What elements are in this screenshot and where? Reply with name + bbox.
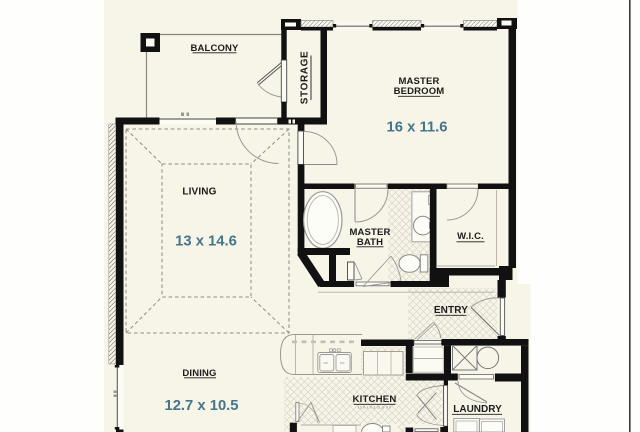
svg-text:BEDROOM: BEDROOM: [394, 86, 445, 97]
svg-text:16 x 11.6: 16 x 11.6: [387, 120, 448, 136]
svg-text:13 x 14.6: 13 x 14.6: [175, 234, 237, 250]
svg-text:W.I.C.: W.I.C.: [457, 231, 484, 242]
svg-text:STORAGE: STORAGE: [300, 51, 311, 104]
svg-text:10.6 x 9.3 CLG 9.0: 10.6 x 9.3 CLG 9.0: [358, 406, 392, 410]
svg-text:ENTRY: ENTRY: [434, 305, 468, 316]
svg-text:KITCHEN: KITCHEN: [352, 394, 396, 405]
svg-text:12.7 x 10.5: 12.7 x 10.5: [164, 398, 238, 414]
svg-text:LAUNDRY: LAUNDRY: [453, 404, 502, 415]
svg-text:LIVING: LIVING: [182, 187, 216, 198]
